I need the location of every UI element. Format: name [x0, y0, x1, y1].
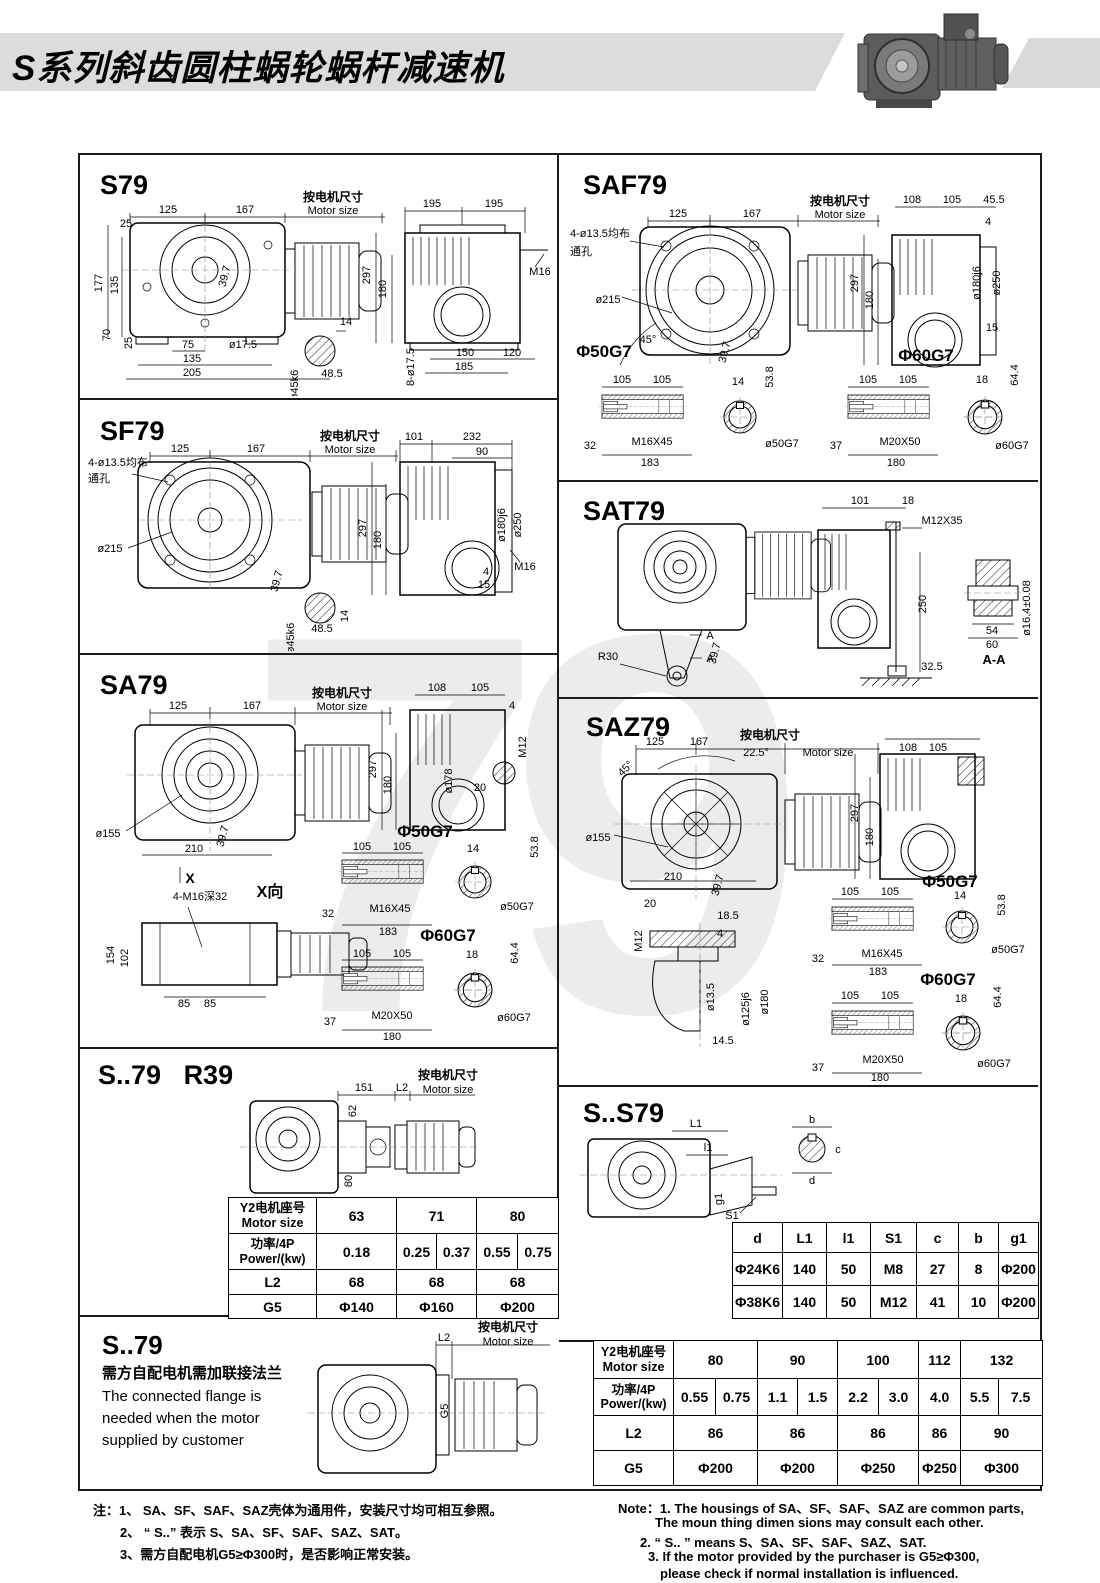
- svg-text:14: 14: [954, 890, 966, 902]
- t1-power: 0.18: [317, 1234, 397, 1270]
- t1-power: 0.55: [477, 1234, 518, 1270]
- svg-text:X: X: [185, 870, 195, 886]
- svg-text:39.7: 39.7: [707, 641, 724, 665]
- t2-cell: 140: [783, 1253, 827, 1286]
- svg-text:105: 105: [353, 948, 371, 960]
- panel-title-sat79: SAT79: [583, 496, 665, 527]
- panel-title-s79b: S..79: [102, 1330, 163, 1361]
- svg-text:M12: M12: [633, 930, 645, 951]
- t2-cell: 140: [783, 1286, 827, 1319]
- svg-text:105: 105: [393, 948, 411, 960]
- svg-text:c: c: [835, 1144, 841, 1156]
- svg-text:32: 32: [322, 908, 334, 920]
- s79r39-dimensions: 151 L2 按电机尺寸 Motor size 62 80: [338, 1067, 478, 1187]
- t3-l2: 86: [919, 1416, 961, 1451]
- svg-text:ø215: ø215: [97, 543, 122, 555]
- svg-text:ø17.5: ø17.5: [229, 339, 257, 351]
- t3-power: 1.1: [758, 1379, 798, 1416]
- svg-text:M16: M16: [514, 561, 535, 573]
- note-zh-3: 3、需方自配电机G5≥Φ300时，是否影响正常安装。: [120, 1544, 418, 1563]
- t1-g5: Φ200: [477, 1295, 559, 1319]
- svg-text:ø180j6: ø180j6: [496, 508, 508, 542]
- t3-size: 112: [919, 1341, 961, 1379]
- svg-text:180: 180: [382, 776, 394, 794]
- saf79-drawing: 4-ø13.5均布 通孔 ø215 45° 39.7 125 167 按电机尺寸…: [560, 155, 1038, 478]
- svg-text:A: A: [706, 630, 714, 642]
- product-photo: [846, 4, 1016, 119]
- svg-text:Φ50G7: Φ50G7: [576, 342, 632, 361]
- t1-l2-label: L2: [229, 1270, 317, 1295]
- t2-cell: Φ200: [999, 1253, 1039, 1286]
- catalog-page: S系列斜齿圆柱蜗轮蜗杆减速机 79 S79 SF79 SA79 S..79 R3…: [0, 0, 1100, 1583]
- svg-text:37: 37: [812, 1062, 824, 1074]
- saz79-front-view: 22.5° 45° ø155 210 39.7: [585, 747, 881, 899]
- svg-text:105: 105: [899, 374, 917, 386]
- svg-text:M16: M16: [529, 266, 550, 278]
- t2-header: c: [917, 1223, 959, 1253]
- t2-cell: 8: [959, 1253, 999, 1286]
- svg-text:S1: S1: [725, 1210, 738, 1222]
- svg-text:25: 25: [123, 337, 135, 349]
- s79r39-figure: [240, 1101, 480, 1193]
- s79-drawing: 125 167 按电机尺寸 Motor size 25 177 135 70 2…: [80, 155, 556, 396]
- t3-size: 100: [838, 1341, 919, 1379]
- t1-y2-en: Motor size: [229, 1216, 316, 1230]
- t2-cell: Φ24K6: [733, 1253, 783, 1286]
- svg-text:按电机尺寸: 按电机尺寸: [740, 727, 800, 742]
- t3-power: 0.75: [716, 1379, 758, 1416]
- t1-g5: Φ160: [397, 1295, 477, 1319]
- svg-text:105: 105: [859, 374, 877, 386]
- svg-text:Φ60G7: Φ60G7: [898, 346, 954, 365]
- t3-g5: Φ250: [919, 1451, 961, 1486]
- svg-text:167: 167: [236, 204, 254, 216]
- t3-l2: 90: [961, 1416, 1043, 1451]
- t3-size: 80: [674, 1341, 758, 1379]
- sa79-drawing: ø155 210 39.7 X 125 167 按电机尺寸 Motor size…: [80, 655, 556, 1045]
- t3-g5-label: G5: [594, 1451, 674, 1486]
- panel-title-ss79: S..S79: [583, 1098, 664, 1129]
- svg-text:105: 105: [943, 194, 961, 206]
- svg-text:18: 18: [902, 495, 914, 507]
- svg-text:75: 75: [182, 339, 194, 351]
- svg-text:ø155: ø155: [585, 832, 610, 844]
- t1-size: 80: [477, 1198, 559, 1234]
- svg-text:183: 183: [641, 457, 659, 469]
- s79b-figure: [308, 1365, 545, 1473]
- svg-text:250: 250: [917, 595, 929, 613]
- sf79-side-view: 101 232 90 297 180 ø180j6 ø250 4 15 M16: [357, 431, 536, 595]
- svg-text:105: 105: [393, 841, 411, 853]
- svg-text:105: 105: [613, 374, 631, 386]
- svg-text:15: 15: [986, 322, 998, 334]
- t1-g5: Φ140: [317, 1295, 397, 1319]
- svg-text:ø50G7: ø50G7: [991, 944, 1025, 956]
- t2-cell: 50: [827, 1253, 871, 1286]
- svg-text:108: 108: [899, 742, 917, 754]
- svg-text:d: d: [809, 1175, 815, 1187]
- t2-cell: M8: [871, 1253, 917, 1286]
- svg-text:ø180: ø180: [759, 989, 771, 1014]
- svg-text:105: 105: [353, 841, 371, 853]
- svg-text:64.4: 64.4: [992, 986, 1004, 1007]
- svg-text:195: 195: [485, 198, 503, 210]
- t2-header: l1: [827, 1223, 871, 1253]
- svg-text:4: 4: [717, 928, 723, 940]
- page-title: S系列斜齿圆柱蜗轮蜗杆减速机: [12, 40, 504, 91]
- svg-text:Φ50G7: Φ50G7: [922, 872, 978, 891]
- svg-text:32: 32: [584, 440, 596, 452]
- svg-text:105: 105: [471, 682, 489, 694]
- svg-text:180: 180: [887, 457, 905, 469]
- t3-g5: Φ200: [674, 1451, 758, 1486]
- svg-text:Motor size: Motor size: [325, 444, 376, 456]
- svg-text:4-ø13.5均布: 4-ø13.5均布: [570, 227, 630, 240]
- svg-text:232: 232: [463, 431, 481, 443]
- sat79-right-view: 101 18 M12X35 250 32.5: [818, 495, 962, 686]
- saf79-phi60-detail: Φ60G7 105 105 37 M20X50 180 18 64.4 ø60G…: [830, 346, 1029, 469]
- t3-g5: Φ300: [961, 1451, 1043, 1486]
- svg-text:Motor size: Motor size: [815, 209, 866, 221]
- svg-text:ø155: ø155: [95, 828, 120, 840]
- panel-title-sf79: SF79: [100, 416, 165, 447]
- svg-text:210: 210: [664, 871, 682, 883]
- t3-pw-en: Power/(kw): [594, 1397, 673, 1411]
- sf79-dimensions: 125 167 按电机尺寸 Motor size: [150, 428, 398, 462]
- svg-text:M20X50: M20X50: [372, 1010, 413, 1022]
- t1-l2: 68: [477, 1270, 559, 1295]
- t3-power: 5.5: [961, 1379, 999, 1416]
- ss79-keyway-section: b c d: [792, 1114, 841, 1187]
- svg-text:297: 297: [849, 274, 861, 292]
- svg-text:L2: L2: [396, 1082, 408, 1094]
- svg-text:R30: R30: [598, 651, 618, 663]
- svg-text:M16X45: M16X45: [632, 436, 673, 448]
- t3-g5: Φ200: [758, 1451, 838, 1486]
- s79-front-view: [122, 215, 381, 351]
- t2-header: L1: [783, 1223, 827, 1253]
- saz79-drawing: 22.5° 45° ø155 210 39.7 125 167 按电机尺寸 Mo…: [560, 699, 1038, 1083]
- svg-text:4-ø13.5均布: 4-ø13.5均布: [88, 456, 148, 469]
- svg-text:185: 185: [455, 361, 473, 373]
- note-en-5: please check if normal installation is i…: [660, 1566, 958, 1581]
- svg-text:8-ø17.5: 8-ø17.5: [405, 348, 417, 386]
- svg-text:39.7: 39.7: [710, 873, 727, 897]
- svg-text:Motor size: Motor size: [308, 205, 359, 217]
- svg-text:105: 105: [881, 990, 899, 1002]
- t3-power: 4.0: [919, 1379, 961, 1416]
- sa79-phi60-detail: Φ60G7 105 105 37 M20X50 180 18 64.4 ø60G…: [324, 926, 531, 1043]
- svg-text:102: 102: [119, 949, 131, 967]
- svg-text:135: 135: [109, 276, 121, 294]
- svg-text:按电机尺寸: 按电机尺寸: [303, 189, 363, 204]
- svg-text:L1: L1: [690, 1118, 702, 1130]
- svg-text:64.4: 64.4: [1009, 364, 1021, 385]
- svg-text:183: 183: [379, 926, 397, 938]
- t1-power: 0.75: [518, 1234, 559, 1270]
- svg-text:297: 297: [357, 519, 369, 537]
- sa79-phi50-detail: Φ50G7 105 105 32 M16X45 183 14 53.8 ø50G…: [322, 822, 541, 938]
- bottom-motor-table: Y2电机座号Motor size 80 90 100 112 132 功率/4P…: [593, 1340, 1043, 1486]
- t3-y2-en: Motor size: [594, 1360, 673, 1374]
- sa79-dimensions: 125 167 按电机尺寸 Motor size: [150, 685, 392, 725]
- sa79-xview: X向 4-M16深32 154 102 85 85: [105, 882, 367, 1010]
- svg-text:125: 125: [171, 443, 189, 455]
- svg-text:90: 90: [476, 446, 488, 458]
- t1-l2: 68: [397, 1270, 477, 1295]
- t2-cell: 27: [917, 1253, 959, 1286]
- panel-title-saz79: SAZ79: [586, 712, 670, 743]
- svg-text:45.5: 45.5: [983, 194, 1004, 206]
- svg-text:ø50G7: ø50G7: [765, 438, 799, 450]
- svg-text:ø45k6: ø45k6: [289, 370, 301, 396]
- svg-text:ø250: ø250: [512, 512, 524, 537]
- svg-text:Motor size: Motor size: [803, 747, 854, 759]
- svg-text:150: 150: [456, 347, 474, 359]
- svg-text:20: 20: [644, 898, 656, 910]
- svg-text:4: 4: [509, 700, 515, 712]
- svg-text:180: 180: [871, 1072, 889, 1083]
- svg-text:4: 4: [985, 216, 991, 228]
- svg-text:ø50G7: ø50G7: [500, 901, 534, 913]
- svg-text:60: 60: [986, 639, 998, 651]
- t2-cell: Φ200: [999, 1286, 1039, 1319]
- ss79-table: d L1 l1 S1 c b g1 Φ24K6 140 50 M8 27 8 Φ…: [732, 1222, 1039, 1319]
- saz79-phi60-detail: Φ60G7 105 105 37 M20X50 180 18 64.4 ø60G…: [812, 970, 1011, 1083]
- svg-text:ø60G7: ø60G7: [995, 440, 1029, 452]
- t1-g5-label: G5: [229, 1295, 317, 1319]
- svg-text:180: 180: [383, 1031, 401, 1043]
- svg-text:108: 108: [428, 682, 446, 694]
- svg-text:g1: g1: [713, 1193, 725, 1205]
- svg-text:M20X50: M20X50: [863, 1054, 904, 1066]
- svg-text:18.5: 18.5: [717, 910, 738, 922]
- t3-y2-zh: Y2电机座号: [594, 1345, 673, 1359]
- svg-text:ø60G7: ø60G7: [977, 1058, 1011, 1070]
- svg-text:154: 154: [105, 946, 117, 964]
- svg-text:25: 25: [120, 218, 132, 230]
- svg-text:ø215: ø215: [595, 294, 620, 306]
- t2-cell: Φ38K6: [733, 1286, 783, 1319]
- saz79-side-view: 108 105 297 180: [849, 739, 984, 879]
- panel-title-saf79: SAF79: [583, 170, 667, 201]
- saz79-phi50-detail: Φ50G7 105 105 32 M16X45 183 14 53.8 ø50G…: [812, 872, 1025, 978]
- svg-text:101: 101: [405, 431, 423, 443]
- svg-text:45°: 45°: [616, 759, 636, 779]
- svg-text:按电机尺寸: 按电机尺寸: [418, 1067, 478, 1082]
- t3-l2: 86: [758, 1416, 838, 1451]
- svg-text:按电机尺寸: 按电机尺寸: [478, 1319, 538, 1334]
- s79b-dimensions: L2 按电机尺寸 Motor size G5: [436, 1319, 550, 1418]
- svg-text:125: 125: [159, 204, 177, 216]
- svg-text:14.5: 14.5: [712, 1035, 733, 1047]
- t1-size: 71: [397, 1198, 477, 1234]
- t3-l2: 86: [674, 1416, 758, 1451]
- saf79-phi50-detail: Φ50G7 105 105 32 M16X45 183 14 53.8 ø50G…: [576, 342, 799, 469]
- svg-text:48.5: 48.5: [321, 368, 342, 380]
- svg-text:14: 14: [340, 316, 352, 328]
- svg-text:205: 205: [183, 367, 201, 379]
- svg-text:105: 105: [881, 886, 899, 898]
- svg-text:297: 297: [367, 760, 379, 778]
- column-divider: [557, 153, 559, 1317]
- svg-text:32: 32: [812, 953, 824, 965]
- t1-l2: 68: [317, 1270, 397, 1295]
- svg-text:64.4: 64.4: [509, 942, 521, 963]
- saz79-flange-detail: 20 18.5 4 M12 ø13.5 ø125j6 ø180 14.5: [633, 898, 771, 1047]
- note-zh-1: 注：1、 SA、SF、SAF、SAZ壳体为通用件，安装尺寸均可相互参照。: [93, 1500, 503, 1519]
- svg-text:54: 54: [986, 625, 998, 637]
- svg-text:125: 125: [669, 208, 687, 220]
- note-en-4: 3. If the motor provided by the purchase…: [648, 1549, 979, 1564]
- svg-text:A-A: A-A: [982, 652, 1006, 667]
- svg-text:195: 195: [423, 198, 441, 210]
- t3-size: 90: [758, 1341, 838, 1379]
- t1-pw-en: Power/(kw): [229, 1252, 316, 1266]
- svg-text:18: 18: [976, 374, 988, 386]
- t3-power: 1.5: [798, 1379, 838, 1416]
- svg-text:45°: 45°: [640, 334, 657, 346]
- svg-text:151: 151: [355, 1082, 373, 1094]
- t3-power: 3.0: [879, 1379, 919, 1416]
- svg-text:167: 167: [690, 736, 708, 748]
- svg-text:37: 37: [324, 1016, 336, 1028]
- ss79-dimensions: L1 l1 g1 S1: [672, 1118, 756, 1222]
- t2-cell: 41: [917, 1286, 959, 1319]
- svg-text:53.8: 53.8: [996, 894, 1008, 915]
- svg-text:48.5: 48.5: [311, 623, 332, 635]
- s79-side-view: 195 195 297 180 M16 150 120 185 8-ø17.5: [361, 198, 551, 386]
- svg-text:297: 297: [849, 804, 861, 822]
- svg-text:ø180j6: ø180j6: [971, 266, 983, 300]
- svg-text:4: 4: [483, 566, 489, 578]
- svg-text:125: 125: [169, 700, 187, 712]
- t1-power: 0.37: [437, 1234, 477, 1270]
- svg-text:210: 210: [185, 843, 203, 855]
- t2-cell: 10: [959, 1286, 999, 1319]
- svg-text:70: 70: [101, 329, 113, 341]
- s79r39-table: Y2电机座号Motor size 63 71 80 功率/4PPower/(kw…: [228, 1197, 559, 1319]
- svg-text:20: 20: [474, 782, 486, 794]
- t3-power: 7.5: [999, 1379, 1043, 1416]
- sat79-section-aa: 54 60 ø16.4±0.08 A-A: [964, 560, 1033, 667]
- svg-text:297: 297: [361, 266, 373, 284]
- svg-text:Motor size: Motor size: [317, 701, 368, 713]
- svg-text:l1: l1: [704, 1142, 713, 1154]
- t1-power: 0.25: [397, 1234, 437, 1270]
- svg-text:177: 177: [93, 274, 105, 292]
- t3-l2: 86: [838, 1416, 919, 1451]
- svg-text:39.7: 39.7: [217, 264, 234, 288]
- t2-cell: 50: [827, 1286, 871, 1319]
- svg-text:b: b: [809, 1114, 815, 1126]
- svg-text:108: 108: [903, 194, 921, 206]
- svg-text:180: 180: [864, 828, 876, 846]
- svg-text:101: 101: [851, 495, 869, 507]
- svg-text:167: 167: [243, 700, 261, 712]
- t3-l2-label: L2: [594, 1416, 674, 1451]
- svg-text:Φ60G7: Φ60G7: [420, 926, 476, 945]
- panel-title-s79: S79: [100, 170, 148, 201]
- svg-text:Motor size: Motor size: [483, 1336, 534, 1348]
- t1-pw-zh: 功率/4P: [229, 1237, 316, 1251]
- svg-text:32.5: 32.5: [921, 661, 942, 673]
- svg-text:85: 85: [178, 998, 190, 1010]
- svg-text:L2: L2: [438, 1332, 450, 1344]
- svg-text:通孔: 通孔: [88, 472, 110, 485]
- t3-pw-zh: 功率/4P: [594, 1383, 673, 1397]
- svg-text:按电机尺寸: 按电机尺寸: [810, 193, 870, 208]
- sa79-side-view: 108 105 4 297 180 ø178 M12 20: [367, 682, 529, 831]
- svg-text:ø45k6: ø45k6: [285, 623, 297, 651]
- sf79-shaft-section: ø45k6 48.5 14: [285, 593, 351, 651]
- sat79-left-view: R30 A A 39.7: [598, 524, 831, 686]
- svg-text:ø60G7: ø60G7: [497, 1012, 531, 1024]
- svg-text:180: 180: [372, 531, 384, 549]
- t2-header: d: [733, 1223, 783, 1253]
- t1-y2-zh: Y2电机座号: [229, 1201, 316, 1215]
- svg-text:按电机尺寸: 按电机尺寸: [320, 428, 380, 443]
- header-accent-band: [1002, 38, 1100, 88]
- svg-text:37: 37: [830, 440, 842, 452]
- t3-power: 2.2: [838, 1379, 879, 1416]
- svg-text:Motor size: Motor size: [423, 1084, 474, 1096]
- svg-text:62: 62: [347, 1105, 359, 1117]
- t1-size: 63: [317, 1198, 397, 1234]
- svg-text:M12X35: M12X35: [922, 515, 963, 527]
- svg-text:Φ50G7: Φ50G7: [397, 822, 453, 841]
- t3-power: 0.55: [674, 1379, 716, 1416]
- panel-title-sa79: SA79: [100, 670, 168, 701]
- svg-text:120: 120: [503, 347, 521, 359]
- svg-text:M20X50: M20X50: [880, 436, 921, 448]
- svg-text:53.8: 53.8: [764, 366, 776, 387]
- note-en-2: The moun thing dimen sions may consult e…: [655, 1515, 984, 1530]
- svg-text:M16X45: M16X45: [370, 903, 411, 915]
- svg-text:通孔: 通孔: [570, 245, 592, 258]
- svg-text:180: 180: [377, 280, 389, 298]
- svg-text:39.7: 39.7: [269, 569, 286, 593]
- t2-header: g1: [999, 1223, 1039, 1253]
- svg-text:Φ60G7: Φ60G7: [920, 970, 976, 989]
- saf79-dimensions: 125 167 按电机尺寸 Motor size: [648, 193, 880, 227]
- s79-dimensions: 125 167 按电机尺寸 Motor size 25 177 135 70 2…: [93, 189, 385, 379]
- svg-text:14: 14: [732, 376, 744, 388]
- svg-text:183: 183: [869, 966, 887, 978]
- t3-size: 132: [961, 1341, 1043, 1379]
- t2-cell: M12: [871, 1286, 917, 1319]
- svg-text:ø16.4±0.08: ø16.4±0.08: [1021, 580, 1033, 636]
- svg-text:按电机尺寸: 按电机尺寸: [312, 685, 372, 700]
- svg-text:80: 80: [343, 1175, 355, 1187]
- svg-text:105: 105: [841, 886, 859, 898]
- svg-text:135: 135: [183, 353, 201, 365]
- svg-text:18: 18: [955, 993, 967, 1005]
- svg-text:4-M16深32: 4-M16深32: [173, 890, 227, 903]
- svg-text:ø13.5: ø13.5: [705, 983, 717, 1011]
- svg-text:105: 105: [653, 374, 671, 386]
- svg-text:ø125j6: ø125j6: [740, 992, 752, 1026]
- t2-header: S1: [871, 1223, 917, 1253]
- svg-text:M12: M12: [517, 736, 529, 757]
- svg-text:14: 14: [339, 610, 351, 622]
- svg-text:167: 167: [743, 208, 761, 220]
- svg-text:14: 14: [467, 843, 479, 855]
- panel-title-s79r39: S..79 R39: [98, 1060, 233, 1091]
- svg-text:G5: G5: [439, 1404, 451, 1419]
- svg-text:18: 18: [466, 949, 478, 961]
- svg-text:ø250: ø250: [991, 270, 1003, 295]
